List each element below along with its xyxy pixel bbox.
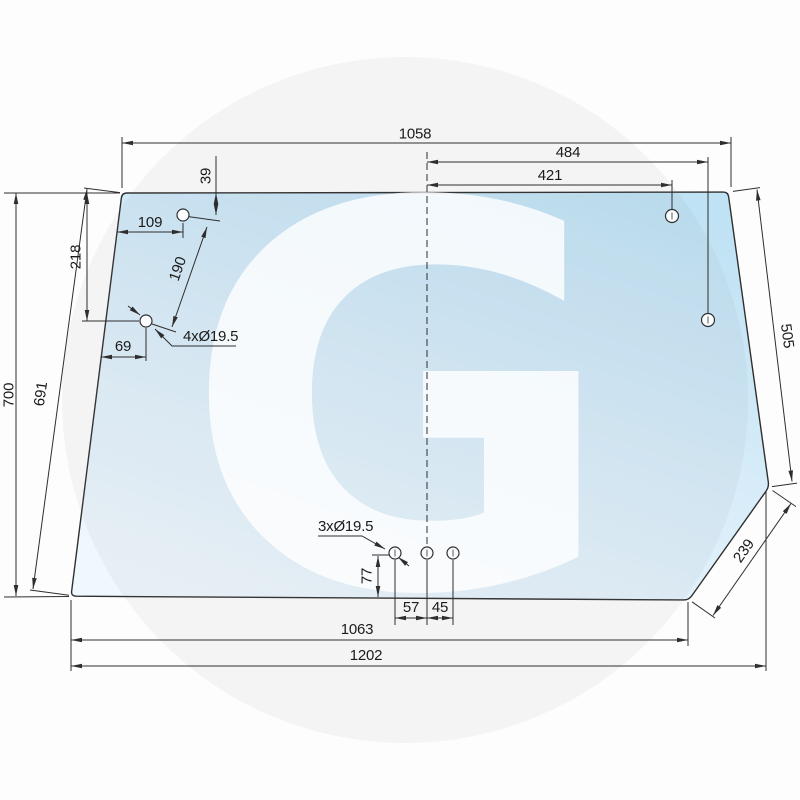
dim-label-109: 109: [138, 214, 162, 231]
dim-label-421: 421: [538, 167, 562, 184]
dim-label-691: 691: [31, 381, 51, 408]
mounting-hole-upper-left-1: [177, 209, 189, 221]
hole-label-bottom: 3xØ19.5: [318, 518, 373, 535]
dim-label-77: 77: [359, 568, 376, 584]
dim-label-239: 239: [730, 536, 758, 566]
dim-label-1063: 1063: [341, 621, 374, 638]
dim-label-700: 700: [1, 383, 18, 407]
dim-label-218: 218: [68, 245, 85, 269]
dim-label-1202: 1202: [350, 647, 383, 664]
dim-label-484: 484: [556, 144, 580, 161]
dim-label-1058: 1058: [399, 126, 432, 143]
dim-label-505: 505: [777, 323, 797, 350]
hole-label-upper-left: 4xØ19.5: [183, 328, 238, 345]
technical-drawing-glass-pane: G: [0, 0, 800, 800]
dim-label-45: 45: [432, 599, 448, 616]
dim-label-57: 57: [403, 599, 419, 616]
dim-label-69: 69: [115, 338, 131, 355]
mounting-hole-upper-left-2: [140, 315, 152, 327]
dim-label-39: 39: [198, 168, 215, 184]
